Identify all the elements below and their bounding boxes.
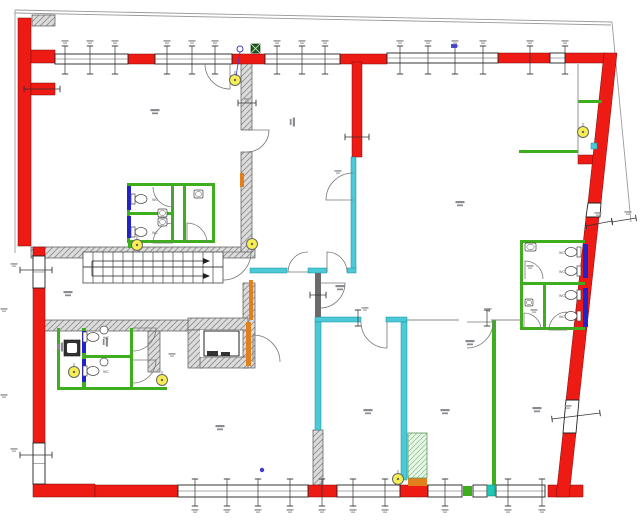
room-label-line <box>151 109 160 111</box>
room-label-line <box>466 340 475 342</box>
floor-plan-page: WCWCWCWCWCWCWCWC <box>0 0 640 520</box>
room-label-line <box>217 429 223 431</box>
green-partition-wall <box>578 100 602 103</box>
cyan-partition-wall <box>401 322 407 480</box>
round-sink-icon <box>100 358 108 366</box>
blue-wall-strip <box>583 288 588 327</box>
room-label-mark <box>216 425 225 430</box>
dim-label-mark <box>190 43 194 44</box>
toilet-tank <box>131 194 135 204</box>
room-label-mark <box>64 291 73 296</box>
blue-wall-strip <box>127 186 131 210</box>
dim-label-mark <box>299 40 306 42</box>
dim-label-mark <box>113 43 117 44</box>
dim-label-mark <box>244 98 251 100</box>
wc-tag-label: WC <box>559 315 565 319</box>
elevator-machine-block <box>221 352 230 356</box>
door-swing-arc <box>153 187 173 207</box>
door-swing-arc <box>253 335 280 362</box>
dim-label-mark <box>625 211 632 213</box>
dim-label-mark <box>443 512 447 513</box>
dim-label-mark <box>486 311 490 312</box>
cyan-partition-wall <box>351 157 356 269</box>
light-center-dot <box>161 379 163 381</box>
dim-label-mark <box>336 173 340 174</box>
green-partition-wall <box>130 328 133 390</box>
green-partition-wall <box>520 327 585 330</box>
orange-frame-strip <box>408 478 427 486</box>
room-label-line <box>152 113 158 115</box>
green-partition-wall <box>463 486 472 496</box>
door-swing-arc <box>247 130 269 152</box>
room-label-line <box>365 413 371 415</box>
toilet-tank <box>577 247 581 257</box>
dim-label-mark <box>12 451 16 452</box>
dim-label-mark <box>213 43 217 44</box>
room-label-mark <box>364 409 373 414</box>
light-center-dot <box>136 244 138 246</box>
room-label-line <box>64 291 73 293</box>
dim-label-mark <box>193 512 197 513</box>
toilet-tank <box>83 366 87 376</box>
green-partition-wall <box>183 183 186 243</box>
red-wall <box>33 484 95 497</box>
toilet-bowl <box>135 195 147 204</box>
dim-label-mark <box>288 512 292 513</box>
dim-label-mark <box>11 448 18 450</box>
hatched-wall <box>188 318 248 330</box>
toilet-tank <box>83 332 87 342</box>
red-wall-slanted <box>566 217 599 400</box>
dim-label-mark <box>481 43 485 44</box>
green-partition-wall <box>543 285 546 330</box>
dim-label-mark <box>442 509 449 511</box>
green-partition-wall <box>520 240 585 243</box>
thin-lines-layer <box>407 64 578 320</box>
dim-label-mark <box>397 40 404 42</box>
orange-walls-layer <box>240 173 427 486</box>
room-label-line <box>364 409 373 411</box>
dim-label-mark <box>566 408 570 409</box>
dim-label-mark <box>2 311 6 312</box>
dimension-tick <box>612 218 636 222</box>
cyan-walls-layer <box>250 157 407 480</box>
dim-label-mark <box>275 43 279 44</box>
red-wall <box>308 485 337 497</box>
dim-label-mark <box>165 43 169 44</box>
dim-label-mark <box>595 212 602 214</box>
dim-label-mark <box>320 512 324 513</box>
dim-label-mark <box>2 397 6 398</box>
dim-label-mark <box>539 509 546 511</box>
hatched-wall <box>200 357 248 368</box>
hatched-wall <box>241 152 252 252</box>
red-wall-slanted <box>588 53 617 203</box>
elevator <box>200 330 240 357</box>
green-partition-wall <box>212 183 215 243</box>
dim-label-mark <box>335 170 342 172</box>
dim-label-mark <box>626 214 630 215</box>
cyan-square-symbol <box>591 143 597 149</box>
door-swing-arc <box>288 252 308 272</box>
toilet-icon <box>565 266 581 276</box>
toilet-bowl <box>565 248 577 257</box>
red-wall <box>352 62 362 157</box>
teal-wall-block <box>487 485 495 496</box>
elevator-machine-block <box>207 351 218 356</box>
dim-label-mark <box>363 310 367 311</box>
green-partition-wall <box>82 355 133 358</box>
stairs <box>83 252 223 283</box>
room-label-line <box>65 295 71 297</box>
dim-label-mark <box>480 40 487 42</box>
dim-label-mark <box>351 512 355 513</box>
dim-label-mark <box>256 512 260 513</box>
room-label-mark <box>533 407 542 412</box>
toilet-icon <box>131 194 147 204</box>
wc-tag-label: WC <box>152 198 158 202</box>
dim-label-mark <box>322 40 329 42</box>
door-swing-arc <box>205 64 230 89</box>
room-label-mark <box>441 409 450 414</box>
dim-label-mark <box>12 266 16 267</box>
toilet-icon <box>565 311 581 321</box>
red-wall <box>33 288 45 443</box>
room-label-line <box>467 344 473 346</box>
dim-label-mark <box>452 40 459 42</box>
dim-label-mark <box>225 512 229 513</box>
dim-label-mark <box>62 40 69 42</box>
dim-label-mark <box>170 356 174 357</box>
dim-label-mark <box>112 40 119 42</box>
dim-label-mark <box>540 512 544 513</box>
dim-label-mark <box>88 43 92 44</box>
orange-frame-strip <box>246 322 251 366</box>
dim-label-mark <box>192 509 199 511</box>
toilet-icon <box>83 332 99 342</box>
wc-tag-label: WC <box>152 231 158 235</box>
room-label-line <box>534 411 540 413</box>
red-wall <box>31 50 55 63</box>
dim-label-mark <box>224 509 231 511</box>
dim-label-mark <box>87 40 94 42</box>
light-center-dot <box>234 79 236 81</box>
room-label-line <box>337 289 343 291</box>
dim-label-mark <box>169 353 176 355</box>
room-label-line <box>290 119 292 125</box>
cyan-partition-wall <box>386 317 407 322</box>
dim-label-mark <box>563 43 567 44</box>
wc-tag-label: WC <box>559 294 565 298</box>
red-wall <box>232 54 265 64</box>
hatched-wall <box>241 62 252 130</box>
room-label-mark <box>466 340 475 345</box>
dim-label-mark <box>362 307 369 309</box>
round-sink-icon <box>100 326 108 334</box>
dim-label-mark <box>565 405 572 407</box>
red-wall <box>498 53 550 63</box>
dim-label-mark <box>506 512 510 513</box>
toilet-tank <box>577 266 581 276</box>
red-wall <box>33 247 45 256</box>
green-partition-wall <box>492 320 496 487</box>
room-label-line <box>58 344 60 350</box>
room-label-line <box>216 425 225 427</box>
hatched-walls-layer <box>31 15 323 485</box>
dim-label-mark <box>527 40 534 42</box>
blue-wall-strip <box>127 216 131 238</box>
dim-label-mark <box>527 265 534 267</box>
wc-tag-label: WC <box>559 251 565 255</box>
toilet-bowl <box>565 312 577 321</box>
toilet-tank <box>131 227 135 237</box>
room-label-line <box>441 409 450 411</box>
toilet-bowl <box>565 291 577 300</box>
toilet-icon <box>131 227 147 237</box>
room-label-line <box>457 205 463 207</box>
dim-label-mark <box>1 308 8 310</box>
wc-tag-label: WC <box>103 370 109 374</box>
cabinet-unit <box>408 433 427 478</box>
dim-label-mark <box>426 43 430 44</box>
property-line <box>612 22 631 222</box>
room-label-line <box>336 285 345 287</box>
property-line <box>15 10 612 22</box>
blue-glyph-symbol <box>451 44 457 48</box>
dim-label-mark <box>596 215 600 216</box>
light-center-dot <box>251 243 253 245</box>
dim-label-mark <box>323 43 327 44</box>
dim-label-mark <box>212 40 219 42</box>
cyan-partition-wall <box>250 268 287 273</box>
dim-label-mark <box>532 312 536 313</box>
toilet-bowl <box>565 267 577 276</box>
cyan-partition-wall <box>347 268 356 273</box>
tick-end-bar <box>635 215 636 221</box>
red-wall <box>565 53 606 63</box>
green-partition-wall <box>520 282 585 285</box>
light-center-dot <box>397 478 399 480</box>
green-partition-wall <box>519 150 578 153</box>
orange-frame-strip <box>240 173 244 187</box>
wc-tag-label: WC <box>559 270 565 274</box>
mop-sink-basin <box>67 343 77 353</box>
dim-label-mark <box>485 308 492 310</box>
tick-end-bar <box>600 410 601 416</box>
toilet-icon <box>565 290 581 300</box>
orange-frame-strip <box>249 280 253 320</box>
room-label-line <box>293 118 295 127</box>
blue-dot-symbol <box>260 468 264 472</box>
toilet-icon <box>83 366 99 376</box>
door-swing-arc <box>326 173 353 200</box>
dim-label-mark <box>189 40 196 42</box>
room-label-line <box>533 407 542 409</box>
hatched-wall <box>32 15 55 26</box>
dim-label-mark <box>398 43 402 44</box>
room-label-mark <box>456 201 465 206</box>
toilet-tank <box>577 311 581 321</box>
green-walls-layer <box>57 100 602 496</box>
toilet-icon <box>565 247 581 257</box>
red-wall <box>95 485 178 497</box>
room-label-line <box>442 413 448 415</box>
door-swing-arc <box>327 252 347 272</box>
dim-label-mark <box>528 268 532 269</box>
dim-label-mark <box>425 40 432 42</box>
blue-wall-strip <box>583 244 588 278</box>
red-wall <box>18 18 31 246</box>
blue-circle-symbol <box>237 46 243 52</box>
dim-label-mark <box>164 40 171 42</box>
door-swing-arc <box>361 322 387 348</box>
cyan-partition-wall <box>315 322 321 430</box>
green-partition-wall <box>57 387 167 390</box>
dim-label-mark <box>562 40 569 42</box>
cyan-partition-wall <box>308 268 327 273</box>
room-label-line <box>456 201 465 203</box>
green-partition-wall <box>57 328 60 390</box>
tick-end-bar <box>611 219 612 225</box>
property-line <box>15 13 611 25</box>
tick-end-bar <box>552 416 553 422</box>
dim-label-mark <box>63 43 67 44</box>
symbols-layer <box>236 44 597 472</box>
toilet-tank <box>577 290 581 300</box>
cyan-partition-wall <box>315 317 361 322</box>
dim-label-mark <box>274 40 281 42</box>
dim-label-mark <box>245 101 249 102</box>
dim-label-mark <box>319 509 326 511</box>
toilet-bowl <box>135 228 147 237</box>
red-wall <box>128 54 155 64</box>
room-label-mark <box>336 285 345 290</box>
red-wall <box>340 54 387 64</box>
dim-label-mark <box>255 509 262 511</box>
dim-label-mark <box>505 509 512 511</box>
dim-label-mark <box>300 43 304 44</box>
dim-label-mark <box>287 509 294 511</box>
dim-label-mark <box>531 309 538 311</box>
toilet-bowl <box>87 367 99 376</box>
hatched-wall <box>43 320 192 331</box>
red-wall <box>400 485 428 497</box>
toilet-bowl <box>87 333 99 342</box>
dim-label-mark <box>453 43 457 44</box>
dim-label-mark <box>383 512 387 513</box>
door-swing-arc <box>525 261 543 279</box>
wc-tag-label: WC <box>103 336 109 340</box>
dim-label-mark <box>11 263 18 265</box>
room-label-line <box>61 343 63 352</box>
floor-plan-drawing: WCWCWCWCWCWCWCWC <box>0 0 640 520</box>
dim-label-mark <box>1 394 8 396</box>
room-label-mark <box>151 109 160 114</box>
light-center-dot <box>73 371 75 373</box>
dim-label-mark <box>350 509 357 511</box>
hatched-wall <box>313 430 323 485</box>
dim-label-mark <box>382 509 389 511</box>
light-center-dot <box>582 131 584 133</box>
dim-label-mark <box>528 43 532 44</box>
room-label-mark <box>290 118 295 127</box>
